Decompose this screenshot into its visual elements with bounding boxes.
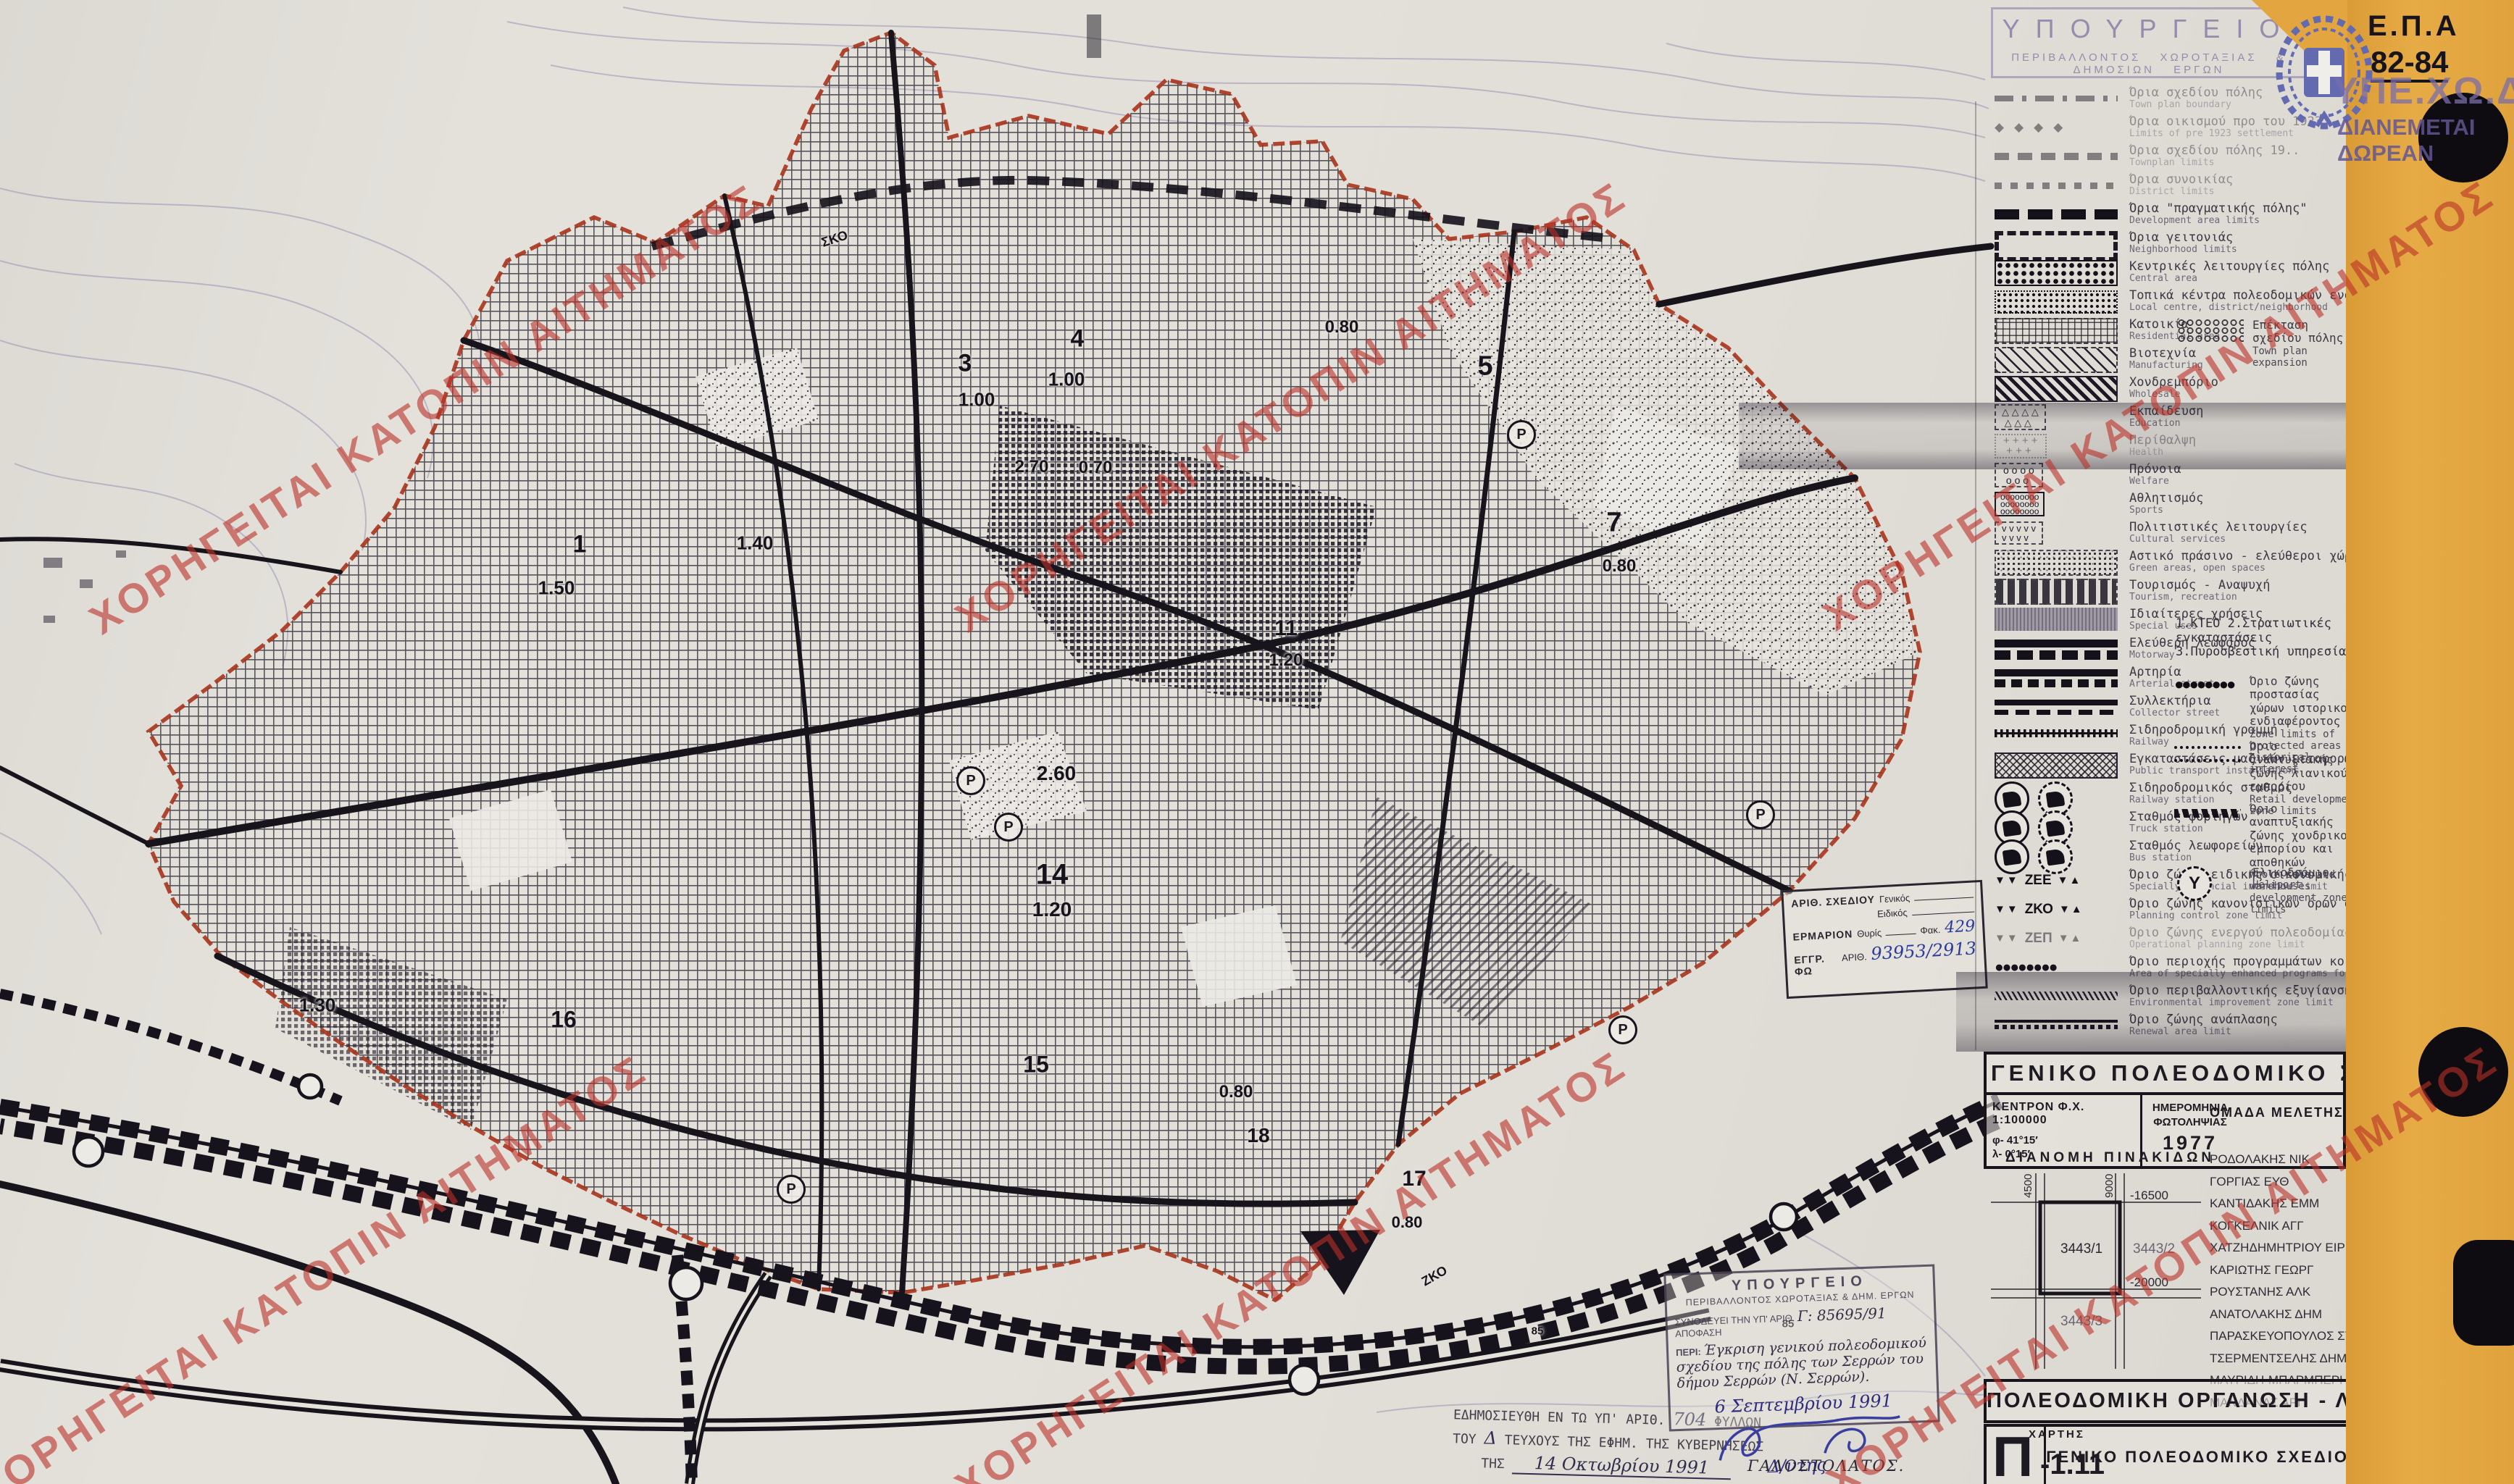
fine-hatch-symbol <box>1995 984 2118 1009</box>
legend-label-en: Education <box>2129 419 2203 429</box>
heavy-dashes-symbol <box>1995 202 2118 227</box>
legend-item: Πολιτιστικές λειτουργίες Cultural servic… <box>1995 520 2347 545</box>
legend-label-en: Sports <box>2129 506 2203 516</box>
zko-symbol: ΖΚΟ <box>1995 897 2118 922</box>
legend-label-el: Τουρισμός - Αναψυχή <box>2129 579 2270 592</box>
dot-band-symbol <box>1995 1013 2118 1038</box>
diag-dense-symbol <box>1995 376 2118 401</box>
square-dots-symbol <box>1995 260 2118 285</box>
ypechode-label: ΥΠΕ.ΧΩ.Δ.Ε. <box>2333 70 2514 113</box>
legend-label-el: Όριο ζώνης ανάπλασης <box>2129 1014 2278 1027</box>
mesh-symbol <box>1995 753 2118 777</box>
legend-item: ΖΕΠ Όριο ζώνης ενεργού πολεοδομίας Opera… <box>1995 926 2347 951</box>
legend-item: Ελικοδρόμιο Heliport <box>2177 866 2364 892</box>
collector-symbol <box>1995 695 2118 719</box>
kentron-label: ΚΕΝΤΡΟΝ Φ.Χ. 1:100000 <box>1992 1101 2134 1127</box>
legend-label-el: Κεντρικές λειτουργίες πόλης <box>2129 261 2329 274</box>
zone-code-label: ΖΚΟ <box>2025 902 2053 918</box>
legend-label-en: Neighborhood limits <box>2129 245 2237 255</box>
bus-station-icon <box>1995 839 2118 864</box>
free-distribution-label: ΔΙΑΝΕΜΕΤΑΙ ΔΩΡΕΑΝ <box>2337 114 2514 167</box>
circles-rows-symbol <box>1995 492 2118 516</box>
fine-dots-symbol <box>1995 289 2118 314</box>
gray-fill-symbol <box>1995 608 2118 632</box>
approval-hand-text: Έγκριση γενικού πολεοδομικού σχεδίου της… <box>1676 1335 1926 1391</box>
legend-label-el: 1.ΚΤΕΟ 2.Στρατιωτικές εγκαταστάσεις <box>2176 617 2363 645</box>
legend-label-en: Development area limits <box>2129 216 2308 226</box>
legend-label-en: Town plan boundary <box>2129 100 2263 110</box>
hand-fak-number: 429 <box>1945 917 1976 936</box>
gazette-line2a: ΤΟΥ <box>1453 1431 1477 1447</box>
diag-symbol <box>1995 347 2118 372</box>
wholesale-line-symbol <box>2174 802 2241 821</box>
index-c2: 3443/2 <box>2133 1241 2175 1257</box>
field-thyris: Θυρίς <box>1857 927 1882 939</box>
signatory-name: ΓΑΛΟΣΤΟΛΑΤΟΣ. <box>1747 1457 1905 1475</box>
legend-item: Όριο περιοχής προγραμμάτων κοινωνικής κα… <box>1995 955 2347 980</box>
legend-item: Κεντρικές λειτουργίες πόλης Central area <box>1995 259 2347 285</box>
plus-symbol <box>1995 434 2118 458</box>
legend-label-el: Περίθαλψη <box>2129 435 2196 448</box>
title-block: ΓΕΝΙΚΟ ΠΟΛΕΟΔΟΜΙΚΟ ΣΧΕΔΙΟ ΚΕΝΤΡΟΝ Φ.Χ. 1… <box>1984 1052 2346 1169</box>
legend-label-en: Cultural services <box>2129 535 2308 545</box>
legend-item: Τοπικά κέντρα πολεοδομικών ενοτήτων Loca… <box>1995 288 2347 314</box>
circles-sparse-symbol <box>1995 463 2118 487</box>
legend-item: Επέκταση σχεδίου πόλης Town plan expansi… <box>2177 319 2364 369</box>
legend-label-el: Όρια "πραγματικής πόλης" <box>2129 203 2308 216</box>
legend-label-el: Αστικό πράσινο - ελεύθεροι χώροι <box>2129 550 2367 563</box>
dots-line-symbol <box>1995 173 2118 198</box>
legend-item: Όριο ζώνης ανάπλασης Renewal area limit <box>1995 1013 2347 1038</box>
legend-label-en: District limits <box>2129 187 2233 197</box>
legend-item: Εκπαίδευση Education <box>1995 404 2347 429</box>
heliport-icon <box>2177 866 2244 885</box>
field-special: Ειδικός <box>1877 907 1908 919</box>
approval-ref-label: ΣΥΝΟΔΕΥΕΙ ΤΗΝ ΥΠ' ΑΡΙΘ. <box>1674 1312 1795 1328</box>
legend-label-el: Όριο αναπτυξιακής ζώνης χονδρικού εμπορί… <box>2250 802 2361 869</box>
crosshatch-symbol <box>1995 318 2118 343</box>
triangles-symbol <box>1995 405 2118 429</box>
index-c3: 3443/3 <box>2060 1314 2102 1329</box>
speckle-symbol <box>1995 550 2118 574</box>
legend-label-en: Townplan limits <box>2129 158 2300 168</box>
phi-coordinate: φ- 41°15′ <box>1992 1134 2134 1146</box>
legend-label-el: Όρια συνοικίας <box>2129 174 2233 187</box>
circle-chain-symbol <box>1995 955 2118 980</box>
legend-item: Τουρισμός - Αναψυχή Tourism, recreation <box>1995 578 2347 603</box>
gazette-hand-date: 14 Οκτωβρίου 1991 <box>1512 1452 1731 1480</box>
drawing-number-stamp: ΑΡΙΘ. ΣΧΕΔΙΟΥ Γενικός Ειδικός ΕΡΜΑΡΙΟΝ Θ… <box>1781 880 1987 999</box>
field-arith: ΑΡΙΘ. <box>1842 951 1867 963</box>
legend-label-el: Πολιτιστικές λειτουργίες <box>2129 521 2308 535</box>
hatch-box-symbol <box>1995 231 2118 256</box>
legend-label-en: Health <box>2129 448 2196 458</box>
legend-label-en: Renewal area limit <box>2129 1027 2278 1037</box>
dashes-symbol <box>1995 144 2118 169</box>
approval-hand-number: Γ: 85695/91 <box>1797 1304 1887 1325</box>
train-station-icon <box>1995 781 2118 806</box>
legend-label-el: Όριο αναπτυξιακής ζώνης λιανικού εμπορίο… <box>2250 740 2361 794</box>
field-general: Γενικός <box>1879 892 1910 905</box>
chain-bold-symbol <box>2174 675 2241 694</box>
legend-label-en: Wholesale <box>2129 390 2218 400</box>
legend-label-el: Πρόνοια <box>2129 464 2181 477</box>
legend-label-en: Operational planning zone limit <box>2129 940 2352 950</box>
retail-line-symbol <box>2174 740 2241 759</box>
legend-item: Πρόνοια Welfare <box>1995 462 2347 487</box>
legend-label-en: Central area <box>2129 274 2329 284</box>
legend-item: Αστικό πράσινο - ελεύθεροι χώροι Green a… <box>1995 549 2347 574</box>
map-sheet: 11.501.4031.0041.000.702.700.80570.80111… <box>0 0 2514 1484</box>
index-h2: -20000 <box>2130 1275 2168 1289</box>
field-fak: Φακ. <box>1920 924 1941 936</box>
heliport-icon <box>2177 866 2212 901</box>
urban-area <box>149 33 1920 1300</box>
v-pattern-symbol <box>1995 521 2118 545</box>
legend-item: Όρια γειτονιάς Neighborhood limits <box>1995 230 2347 256</box>
punch-hole-bottom <box>2418 1027 2508 1117</box>
gazette-line1a: ΕΔΗΜΟΣΙΕΥΘΗ ΕΝ ΤΩ ΥΠ' ΑΡΙΘ. <box>1453 1407 1666 1428</box>
motorway-symbol <box>1995 637 2118 661</box>
ermarion-label: ΕΡΜΑΡΙΟΝ <box>1792 928 1853 942</box>
zone-code-label: ΖΕΠ <box>2025 931 2052 947</box>
epa-label: Ε.Π.Α <box>2368 10 2460 43</box>
legend-item: Όρια "πραγματικής πόλης" Development are… <box>1995 201 2347 227</box>
gazette-hand-issue: Δ <box>1484 1428 1497 1448</box>
eggr-label: ΕΓΓΡ. ΦΩ <box>1794 952 1838 977</box>
zep-symbol: ΖΕΠ <box>1995 926 2118 951</box>
legend-label-el: Χονδρεμπόριο <box>2129 377 2218 390</box>
gazette-line3a: ΤΗΣ <box>1481 1456 1505 1472</box>
legend-label-el: Όρια σχεδίου πόλης 19.. <box>2129 145 2300 158</box>
legend-item: 1.ΚΤΕΟ 2.Στρατιωτικές εγκαταστάσεις 3.Πυ… <box>2176 617 2363 660</box>
main-title: ΓΕΝΙΚΟ ΠΟΛΕΟΔΟΜΙΚΟ ΣΧΕΔΙΟ <box>1984 1052 2346 1095</box>
legend-item: Όρια συνοικίας District limits <box>1995 172 2347 198</box>
peri-label: ΠΕΡΙ: <box>1676 1346 1701 1358</box>
legend-label-en: Green areas, open spaces <box>2129 563 2367 574</box>
sheet-index-diagram: 4500 9000 -16500 -20000 3443/1 3443/2 34… <box>1991 1173 2201 1369</box>
sheet-distribution-label: ΔΙΑΝΟΜΗ ΠΙΝΑΚΙΔΩΝ <box>2005 1150 2215 1166</box>
organization-title: ΠΟΛΕΟΔΟΜΙΚΗ ΟΡΓΑΝΩΣΗ - ΛΕΙΤΟΥΡΓΙΕΣ <box>1984 1379 2352 1423</box>
team-label: ΟΜΑΔΑ ΜΕΛΕΤΗΣ <box>2210 1105 2344 1120</box>
legend-item: Περίθαλψη Health <box>1995 433 2347 458</box>
circle-pattern-symbol <box>2177 319 2244 338</box>
index-v1: 4500 <box>2022 1174 2034 1198</box>
legend-label-en: 3.Πυροσβεστική υπηρεσία <box>2176 645 2363 660</box>
legend-label-el: Αθλητισμός <box>2129 492 2203 506</box>
zone-code-label: ΖΕΕ <box>2025 873 2052 889</box>
truck-station-icon <box>1995 810 2118 835</box>
hand-protocol-number: 93953/2913 <box>1871 938 1977 964</box>
legend-label-el: Όριο ζώνης προστασίας χώρων ιστορικού εν… <box>2250 675 2361 729</box>
approval-decision-label: ΑΠΟΦΑΣΗ <box>1675 1327 1722 1339</box>
folder-clip-shadow <box>2453 1240 2514 1346</box>
legend-label-el: Όρια σχεδίου πόλης <box>2129 87 2263 100</box>
diamonds-symbol <box>1995 115 2118 140</box>
dashdot-fill-symbol <box>1995 579 2118 603</box>
legend-item: Χονδρεμπόριο Wholesale <box>1995 375 2347 401</box>
index-c1: 3443/1 <box>2060 1241 2102 1257</box>
legend-label-el: Όρια γειτονιάς <box>2129 232 2237 245</box>
legend-item: Όρια σχεδίου πόλης 19.. Townplan limits <box>1995 143 2347 169</box>
railway-symbol <box>1995 724 2118 748</box>
legend-label-en: Tourism, recreation <box>2129 592 2270 603</box>
legend-item: Όριο περιβαλλοντικής εξυγίανσης αναβάθμι… <box>1995 984 2347 1009</box>
legend-label-el: Όριο ζώνης ενεργού πολεοδομίας <box>2129 927 2352 940</box>
legend-label-en: Welfare <box>2129 477 2181 487</box>
legend-label-el: Ελικοδρόμιο <box>2252 866 2329 879</box>
index-v2: 9000 <box>2103 1174 2116 1198</box>
legend-item: Αθλητισμός Sports <box>1995 491 2347 516</box>
dashdot-symbol <box>1995 86 2118 111</box>
zee-symbol: ΖΕΕ <box>1995 868 2118 893</box>
index-h1: -16500 <box>2130 1189 2168 1202</box>
legend-label-en: Heliport <box>2252 879 2329 891</box>
arterial-symbol <box>1995 666 2118 690</box>
drawing-stamp-title: ΑΡΙΘ. ΣΧΕΔΙΟΥ <box>1791 894 1876 910</box>
legend-label-el: Εκπαίδευση <box>2129 406 2203 419</box>
